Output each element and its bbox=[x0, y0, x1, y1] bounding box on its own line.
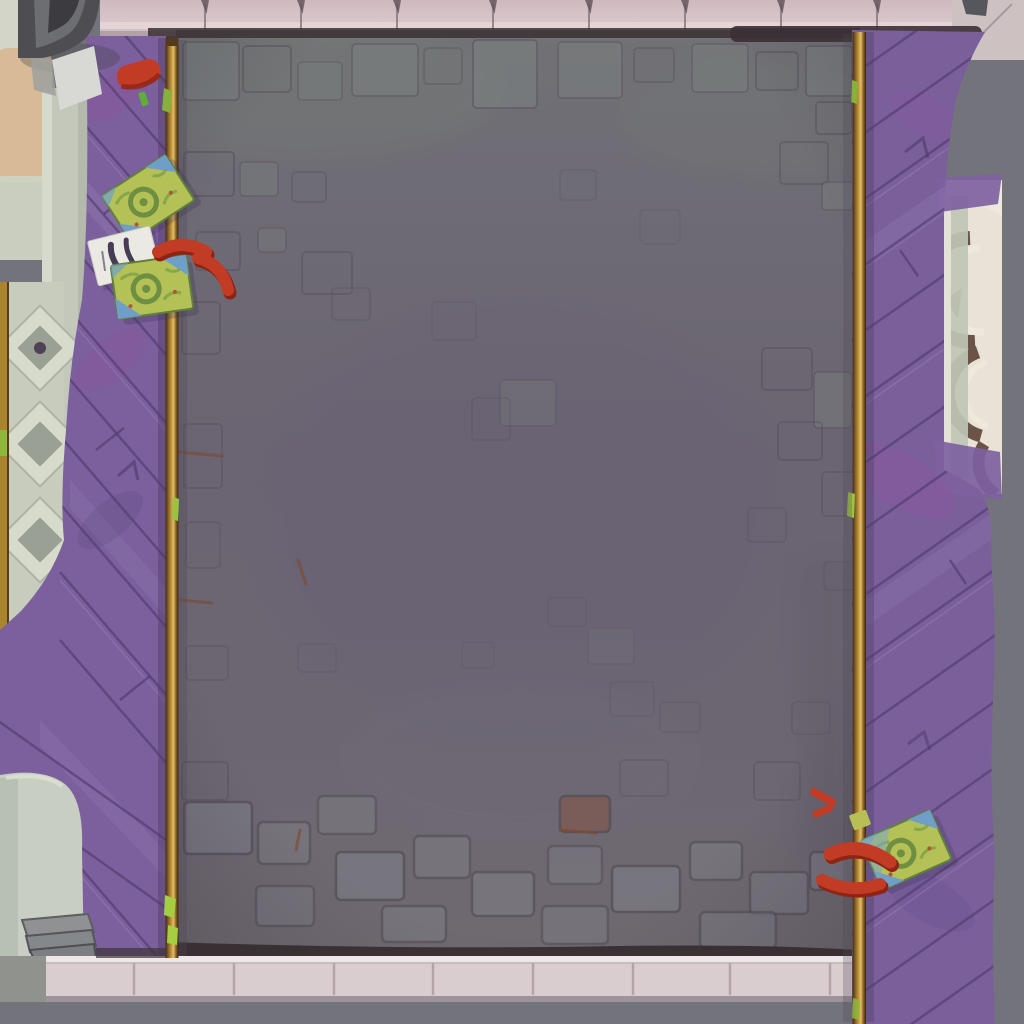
pole bbox=[853, 32, 867, 1024]
moss-patch bbox=[851, 80, 858, 104]
moss-patch bbox=[852, 998, 860, 1020]
moss-patch bbox=[164, 895, 176, 918]
scene-canvas bbox=[0, 0, 1024, 1024]
curb-top-shadow bbox=[96, 948, 174, 958]
arcs-strip-highlight bbox=[944, 196, 951, 478]
moss-patch bbox=[0, 430, 7, 456]
cobblestone-road bbox=[100, 20, 940, 958]
money-bill bbox=[111, 254, 200, 326]
pole-cap bbox=[166, 38, 179, 46]
bottom-curb-shadow bbox=[46, 996, 852, 1002]
vignette bbox=[176, 30, 858, 958]
corner-dark-detail bbox=[962, 0, 988, 16]
right-gold-pole bbox=[843, 32, 866, 1024]
bottom-left-trim bbox=[0, 956, 48, 1002]
game-arena-scene bbox=[0, 0, 1024, 1024]
pole-shadow-on-planks bbox=[866, 32, 874, 1022]
pole-shadow-on-road bbox=[843, 34, 852, 1022]
stone-steps bbox=[22, 914, 96, 960]
stone-blob-shade bbox=[0, 778, 18, 962]
moss-patch bbox=[172, 497, 179, 521]
moss-patch bbox=[167, 925, 178, 945]
bottom-curb bbox=[0, 948, 852, 1002]
